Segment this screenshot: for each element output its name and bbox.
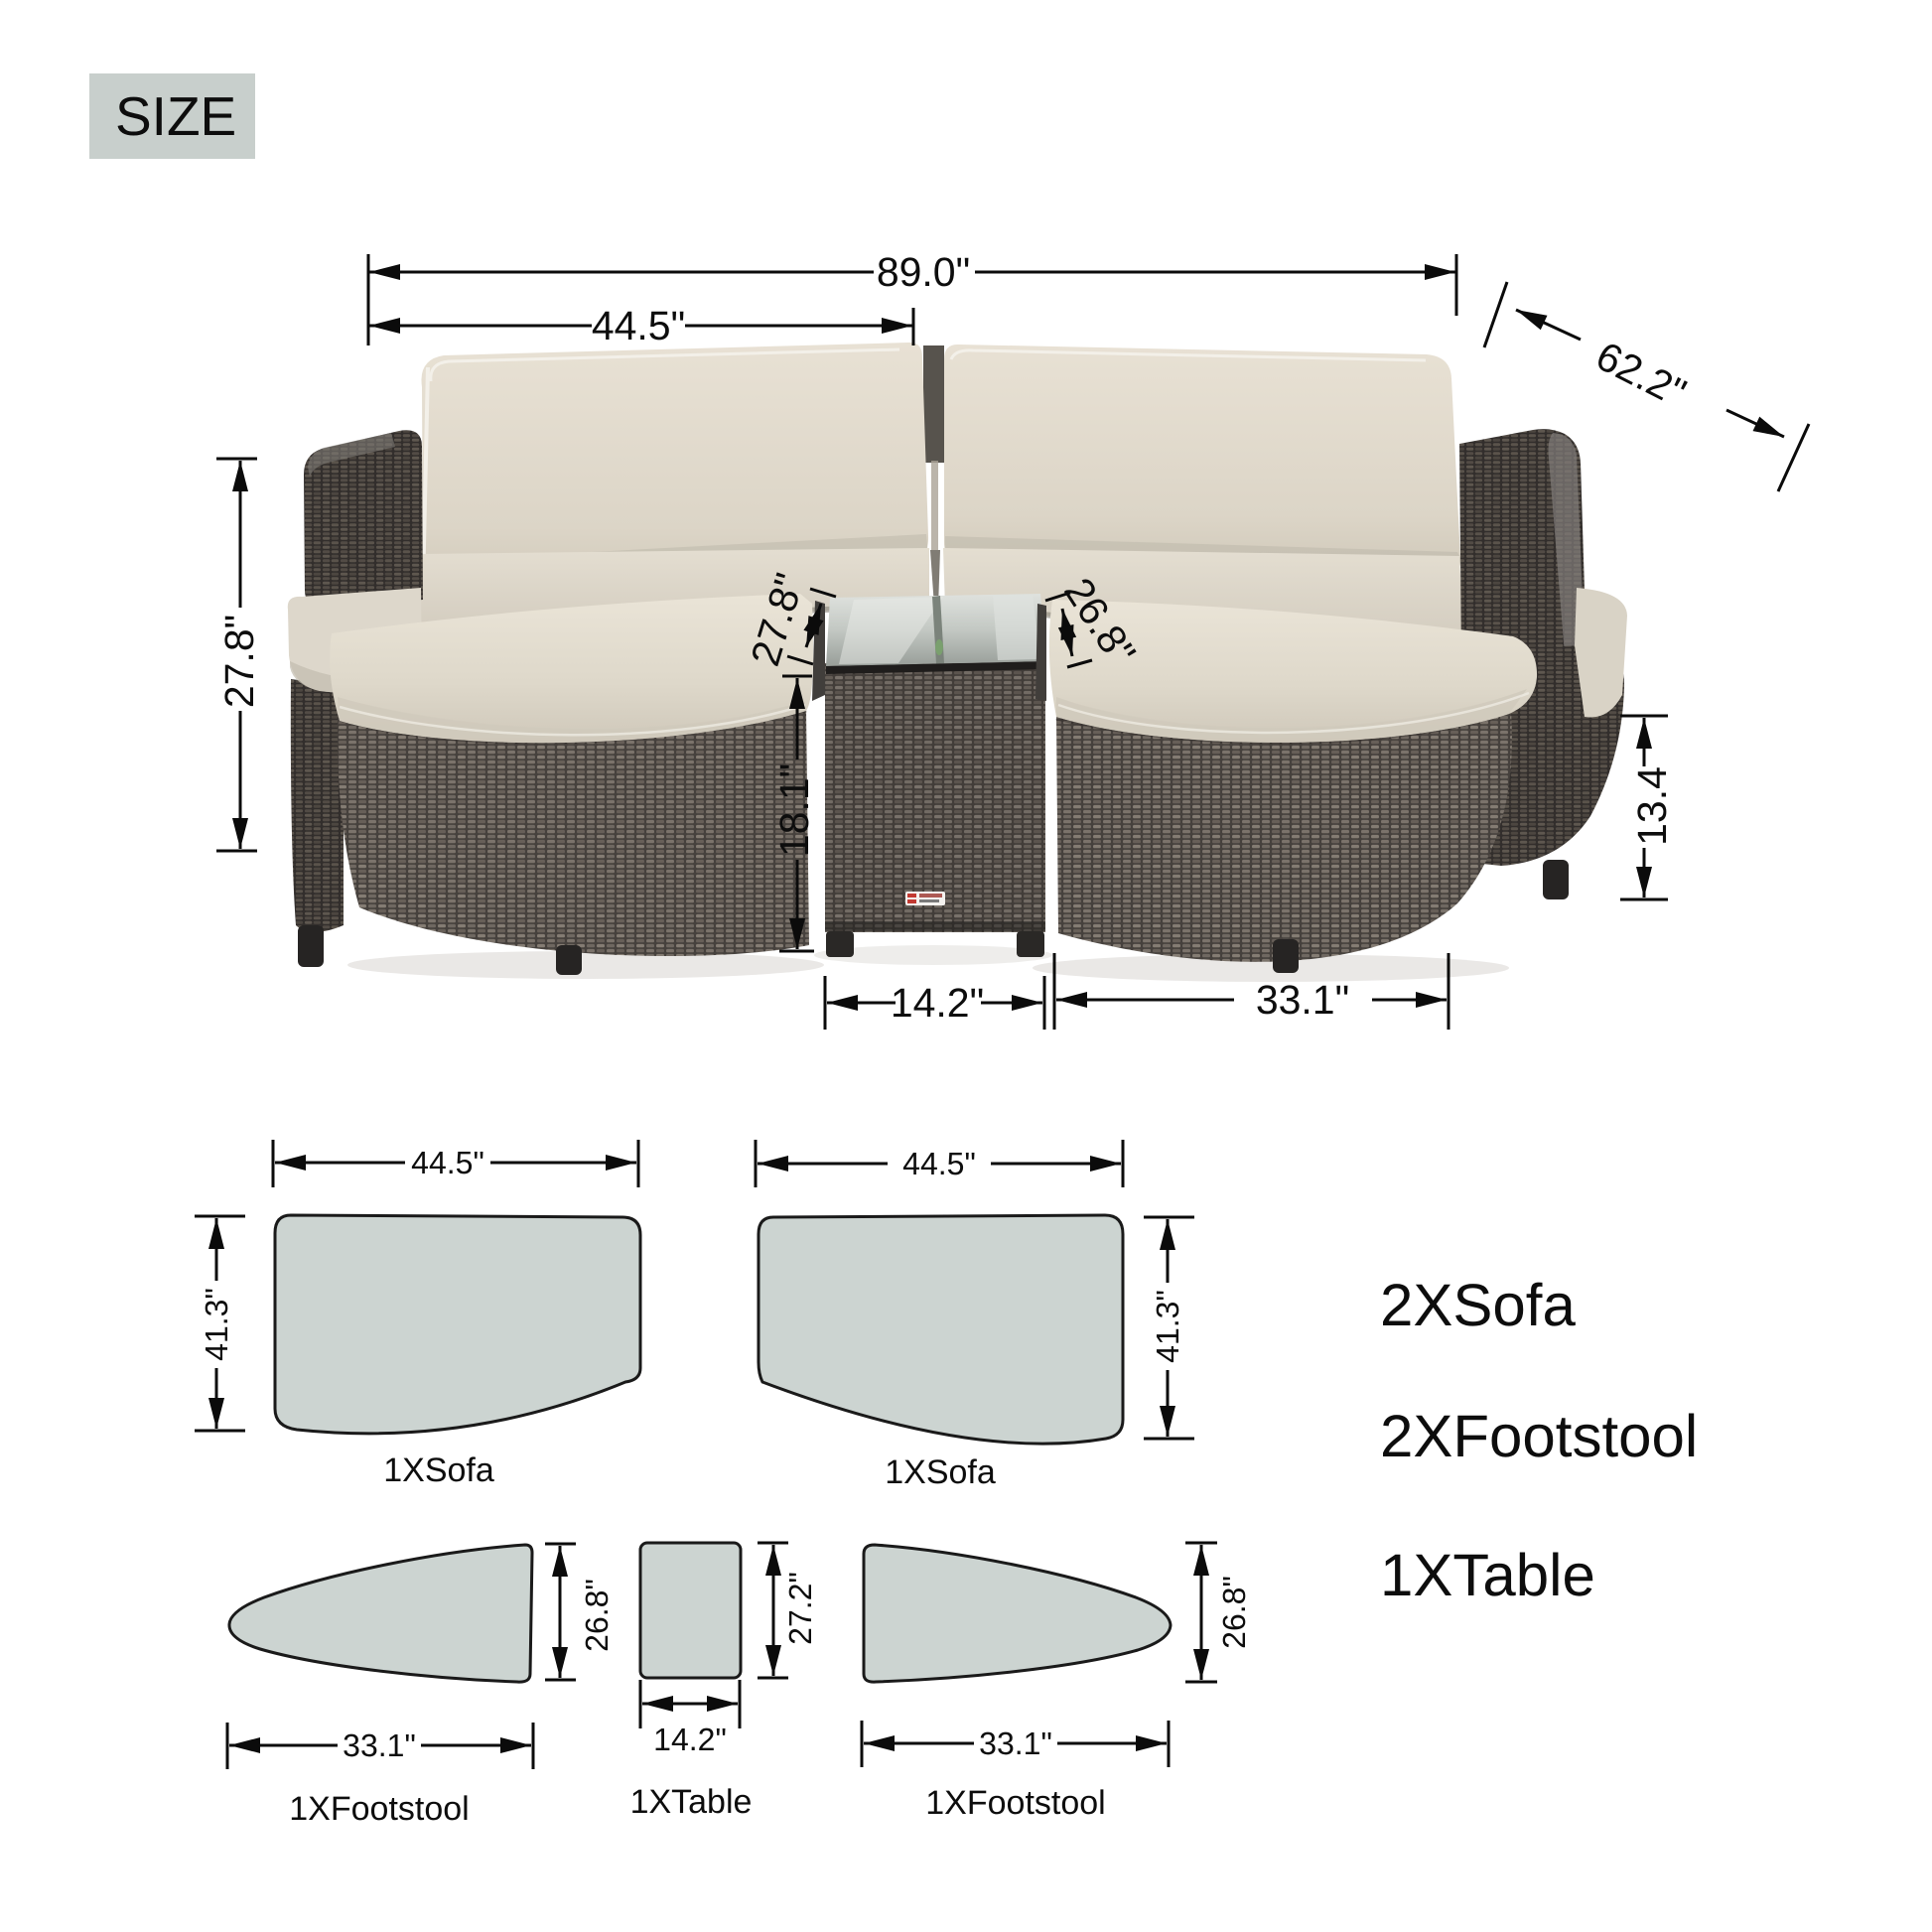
svg-text:41.3": 41.3" [199,1288,234,1361]
svg-text:14.2": 14.2" [653,1722,727,1757]
svg-text:89.0": 89.0" [877,249,970,295]
svg-text:1XTable: 1XTable [630,1783,753,1821]
svg-text:33.1": 33.1" [343,1727,416,1763]
svg-text:62.2": 62.2" [1589,333,1694,416]
svg-text:26.8": 26.8" [1216,1576,1252,1649]
svg-text:13.4: 13.4 [1629,766,1675,846]
svg-text:1XSofa: 1XSofa [383,1451,494,1489]
svg-text:2XFootstool: 2XFootstool [1380,1403,1698,1469]
svg-text:1XFootstool: 1XFootstool [925,1784,1105,1822]
svg-text:18.1": 18.1" [771,763,817,857]
svg-text:27.2": 27.2" [782,1572,818,1645]
svg-text:44.5": 44.5" [902,1146,976,1181]
svg-text:41.3": 41.3" [1150,1290,1185,1363]
svg-text:1XFootstool: 1XFootstool [289,1790,469,1828]
svg-text:SIZE: SIZE [115,85,236,147]
svg-text:1XTable: 1XTable [1380,1542,1595,1608]
svg-text:44.5": 44.5" [592,303,685,348]
svg-text:33.1": 33.1" [1256,977,1349,1023]
svg-text:26.8": 26.8" [579,1579,615,1652]
svg-text:1XSofa: 1XSofa [885,1453,996,1491]
svg-text:27.8": 27.8" [216,615,262,708]
svg-text:14.2": 14.2" [891,980,984,1026]
svg-text:44.5": 44.5" [411,1145,484,1180]
svg-text:2XSofa: 2XSofa [1380,1272,1576,1338]
svg-text:33.1": 33.1" [979,1725,1052,1761]
